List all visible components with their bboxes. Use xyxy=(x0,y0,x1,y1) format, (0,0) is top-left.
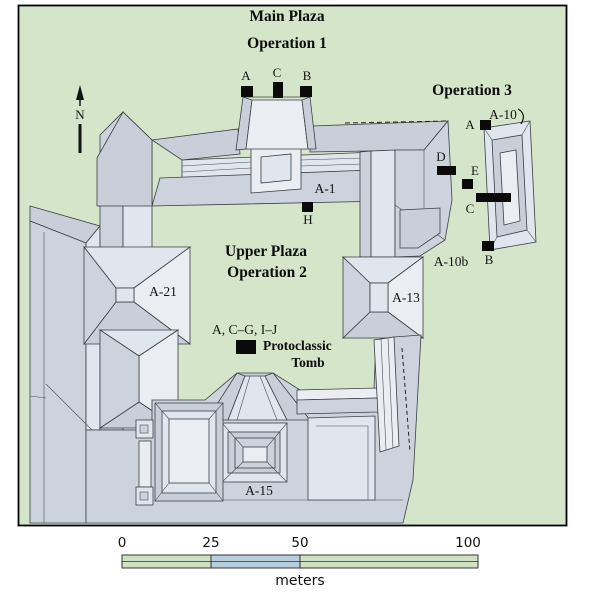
facet xyxy=(30,221,86,523)
small-platform-inner xyxy=(140,425,148,433)
scale-tick-100: 100 xyxy=(455,535,481,551)
site-map-canvas: N Main Plaza Operation 1 Operation 3 Upp… xyxy=(0,0,601,600)
unit-marker-op1-c xyxy=(273,82,283,98)
label-unit-op1-a: A xyxy=(241,68,251,83)
label-unit-op1-b: B xyxy=(303,68,312,83)
unit-marker-op3-d xyxy=(437,166,456,175)
unit-marker-op3-c xyxy=(476,193,511,202)
label-unit-op3-a: A xyxy=(465,117,475,132)
label-a10: A-10 xyxy=(489,107,517,122)
scale-tick-0: 0 xyxy=(118,535,127,551)
title-main-plaza: Main Plaza xyxy=(249,8,325,25)
title-operation1: Operation 1 xyxy=(247,35,327,52)
unit-marker-op1-a xyxy=(241,86,253,97)
unit-marker-op3-b xyxy=(482,241,494,251)
label-unit-h: H xyxy=(303,212,312,227)
scale-unit-label: meters xyxy=(275,573,324,589)
central-doorway-inner xyxy=(261,154,291,183)
unit-marker-op3-e xyxy=(462,179,473,189)
building-face xyxy=(308,416,375,500)
label-a13: A-13 xyxy=(392,290,420,305)
tomb-units-label: A, C–G, I–J xyxy=(212,322,277,337)
label-a21: A-21 xyxy=(149,284,177,299)
small-platform-inner xyxy=(140,492,148,500)
wall-face xyxy=(297,398,378,414)
label-unit-op3-e: E xyxy=(471,163,479,178)
label-unit-op3-c: C xyxy=(466,201,475,216)
scale-bar: 0 25 50 100 meters xyxy=(118,535,481,589)
pyramid-apex xyxy=(116,288,134,302)
platform-court xyxy=(500,150,520,225)
label-a15: A-15 xyxy=(245,483,273,498)
label-a10b: A-10b xyxy=(434,254,469,269)
north-label: N xyxy=(75,107,85,122)
site-map-page: N Main Plaza Operation 1 Operation 3 Upp… xyxy=(0,0,601,600)
title-operation3: Operation 3 xyxy=(432,82,512,99)
tomb-name-line1: Protoclassic xyxy=(263,338,332,353)
facet xyxy=(360,151,371,257)
small-stair xyxy=(139,441,151,487)
label-a1: A-1 xyxy=(315,181,336,196)
title-operation2: Operation 2 xyxy=(227,264,307,281)
court-inner xyxy=(243,447,267,462)
tomb-name-line2: Tomb xyxy=(291,355,324,370)
facet xyxy=(371,150,395,257)
scale-tick-25: 25 xyxy=(202,535,219,551)
scale-tick-50: 50 xyxy=(291,535,308,551)
label-unit-op3-b: B xyxy=(485,252,494,267)
tower-tier xyxy=(169,419,209,483)
label-unit-op3-d: D xyxy=(436,149,445,164)
unit-marker-op1-b xyxy=(300,86,312,97)
structure-a10 xyxy=(484,121,536,250)
unit-marker-h xyxy=(302,202,313,212)
pyramid-apex xyxy=(370,283,388,312)
tomb-marker xyxy=(236,340,256,354)
title-upper-plaza: Upper Plaza xyxy=(225,243,307,260)
label-unit-op1-c: C xyxy=(273,65,282,80)
stair-face xyxy=(246,100,308,149)
